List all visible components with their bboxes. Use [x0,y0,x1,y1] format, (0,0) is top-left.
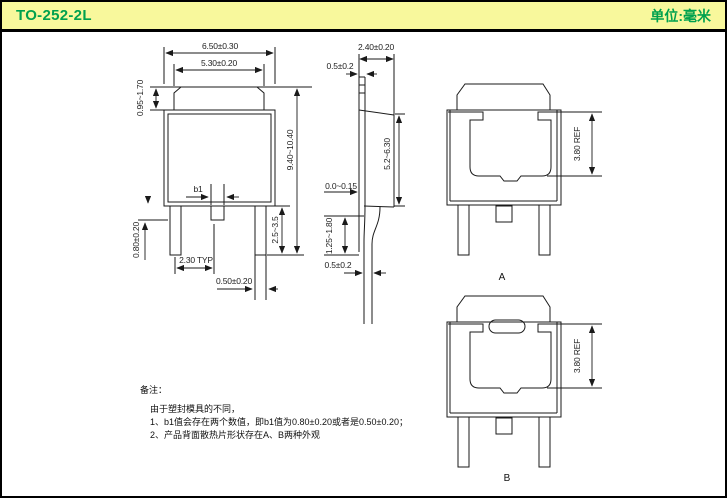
dim-lead-width: 0.50±0.20 [216,276,252,286]
front-center-stub [211,206,224,220]
notes-item-1: 1、b1值会存在两个数值，即b1值为0.80±0.20或者是0.50±0.20； [150,416,460,429]
dim-body-thickness: 2.40±0.20 [358,42,394,52]
front-view [138,47,312,300]
dim-lead-bend: 1.25~1.80 [324,217,334,254]
dim-lead-pitch: 2.30 TYP [179,255,213,265]
dim-lead-thickness: 0.5±0.2 [325,260,352,270]
dim-b1: b1 [193,184,203,194]
notes-intro: 由于塑封模具的不同， [150,403,460,416]
notes-title: 备注： [140,384,460,397]
rear-view-a [447,84,602,255]
heatsink-pad-outline-b [448,324,560,393]
notes-item-2: 2、产品背面散热片形状存在A、B两种外观 [150,429,460,442]
view-label-a: A [499,272,506,283]
dim-pad-standoff: 0.0~0.15 [325,181,357,191]
dim-tab-width: 5.30±0.20 [201,58,237,68]
front-right-lead [255,206,266,255]
rear-view-b: 3.80 REF [447,296,602,467]
front-left-lead [170,206,181,255]
side-lead-back [364,206,365,324]
dim-pad-height-a: 3.80 REF [572,127,582,161]
rear-view-a-dimensions: 3.80 REF [572,114,592,174]
dim-lead-length: 2.5~3.5 [270,216,280,244]
dim-body-width: 6.50±0.30 [202,41,238,51]
dim-tab-thickness: 0.5±0.2 [327,61,354,71]
dim-pad-height-b: 3.80 REF [572,339,582,373]
view-label-b: B [504,473,511,484]
dim-tab-height: 0.95~1.70 [135,79,145,116]
dim-body-height: 5.2~6.30 [382,138,392,170]
package-outline-sheet: TO-252-2L 单位:毫米 [0,0,727,498]
heatsink-pad-outline-a [448,112,560,181]
side-lead-front [372,207,380,324]
dim-total-height: 9.40~10.40 [285,129,295,170]
dim-stub-protrusion: 0.80±0.20 [131,222,141,258]
notes-block: 备注： 由于塑封模具的不同， 1、b1值会存在两个数值，即b1值为0.80±0.… [140,384,460,442]
